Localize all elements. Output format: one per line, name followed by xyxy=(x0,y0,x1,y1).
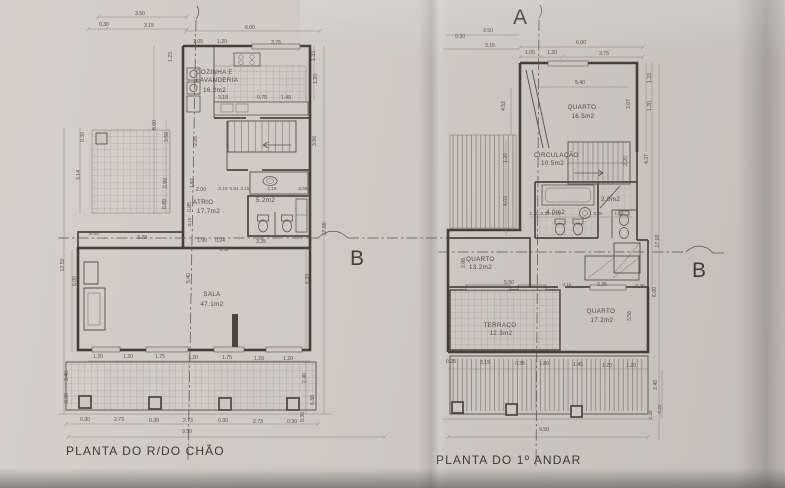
dimension-label: 1.45 xyxy=(573,362,583,368)
dimension-label: 1.20 xyxy=(313,74,319,84)
room-name-kitchen: COZINHA E xyxy=(196,69,233,76)
dimension-label: 3.50 xyxy=(483,28,493,34)
room-area-bath: 5.2m2 xyxy=(256,197,275,204)
dimension-label: 1.80 xyxy=(539,361,549,367)
dimension-label: 3.15 xyxy=(144,23,154,29)
room-area-kitchen: 16.2m2 xyxy=(203,87,226,94)
ground-patio-grid xyxy=(92,130,170,213)
dimension-label: 2.73 xyxy=(253,419,263,425)
dimension-label: 6.00 xyxy=(245,25,255,31)
dimension-label: 3.15 xyxy=(485,43,495,49)
dimension-label: 1.20 xyxy=(93,354,103,360)
dimension-label: 1.20 xyxy=(123,354,133,360)
toilet-icon xyxy=(282,215,293,232)
dimension-label: 9.50 xyxy=(539,427,549,433)
dimension-label: 17.00 xyxy=(322,222,328,235)
dimension-label: 0.30 xyxy=(80,417,90,423)
dimension-label: 1.23 xyxy=(168,52,174,62)
dimension-label: 1.20 xyxy=(647,101,653,111)
column xyxy=(79,396,91,408)
dimension-label: 3.58 xyxy=(164,132,170,142)
dimension-label: 1.20 xyxy=(626,363,636,369)
room-name-circulacao: CIRCULAÇÃO xyxy=(534,152,579,159)
room-name-quarto2: QUARTO xyxy=(466,256,495,263)
dimension-label: 2.73 xyxy=(114,417,124,423)
dimension-label: 1.20 xyxy=(254,356,264,362)
dimension-label: 0.15 xyxy=(541,211,550,216)
room-area-quarto1: 16.5m2 xyxy=(571,113,594,120)
dimension-label: 0.30 xyxy=(594,211,603,216)
dimension-label: 0.15 xyxy=(187,217,192,226)
dimension-label: 2.40 xyxy=(64,371,70,381)
dimension-label: 3.25 xyxy=(597,282,607,288)
dimension-label: 0.35 xyxy=(515,361,525,367)
dimension-label: 0.99 xyxy=(163,178,169,188)
dimension-label: 2.20 xyxy=(193,136,199,146)
dimension-label: 1.90 xyxy=(197,238,207,244)
blueprint-photo: 3.50 0.30 3.15 6.00 1.05 1.20 3.75 COZIN… xyxy=(0,0,785,488)
dimension-label: 0.15 xyxy=(563,282,572,287)
dimension-label: 6.00 xyxy=(72,276,78,286)
column xyxy=(452,402,463,413)
dimension-label: 1.20 xyxy=(547,50,557,56)
room-name-sala: SALA xyxy=(203,291,221,298)
closets xyxy=(585,243,640,280)
dimension-label: 1.75 xyxy=(222,355,232,361)
room-area-terraco: 12.3m2 xyxy=(489,330,512,337)
dimension-label: 0.30 xyxy=(89,231,99,237)
dimension-label: 1.33 xyxy=(647,73,653,83)
dimension-label: 5.50 xyxy=(504,280,514,286)
dimension-label: 0.75 xyxy=(257,95,267,101)
dimension-label: 1.05 xyxy=(193,39,203,45)
dimension-label: 3.50 xyxy=(135,11,145,17)
room-name-quarto3: QUARTO xyxy=(587,308,616,315)
dimension-label: 12.50 xyxy=(60,258,66,271)
window xyxy=(92,347,120,352)
column xyxy=(287,398,299,410)
dimension-label: 4.37 xyxy=(644,154,650,164)
dimension-label: 3.18 xyxy=(218,95,228,101)
ground-front-terrace xyxy=(58,362,332,414)
dimension-label: 1.20 xyxy=(217,39,227,45)
first-floor-plan: A 3.50 0.30 3.15 6.00 1.05 1.20 3.75 5.4… xyxy=(436,5,726,468)
fireplace xyxy=(84,262,105,330)
dimension-label: 3.75 xyxy=(271,40,281,46)
ground-floor-plan: 3.50 0.30 3.15 6.00 1.05 1.20 3.75 COZIN… xyxy=(58,6,458,462)
section-marker-b-first: B xyxy=(692,259,706,282)
dimension-label: 0.84 xyxy=(230,186,239,191)
cabinet xyxy=(187,96,200,112)
dimension-label: 9.50 xyxy=(182,429,192,435)
column xyxy=(506,404,517,415)
room-name-kitchen2: LAVANDERIA xyxy=(196,77,239,84)
room-name-atrio: ATRIO xyxy=(193,199,213,206)
plan-title-first: PLANTA DO 1º ANDAR xyxy=(436,453,581,467)
dimension-label: 6.39 xyxy=(305,274,311,284)
shower-icon xyxy=(296,199,307,232)
dimension-label: 1.57 xyxy=(190,178,196,188)
dimension-label: 0.89 xyxy=(162,199,168,209)
dimension-label: 1.20 xyxy=(503,153,509,163)
dimension-label: 1.50 xyxy=(615,211,624,216)
dimension-label: 0.30 xyxy=(287,419,297,425)
dimension-label: 1.25 xyxy=(552,211,561,216)
dimension-label: 3.07 xyxy=(626,99,632,109)
dimension-label: 0.24 xyxy=(215,238,225,244)
dimension-label: 17.00 xyxy=(655,234,661,247)
stairs xyxy=(228,121,296,152)
dimension-label: 2.00 xyxy=(196,187,206,193)
dimension-label: 6.00 xyxy=(652,287,658,297)
dimension-label: 0.15 xyxy=(241,186,250,191)
window xyxy=(548,61,588,66)
kitchen-fixtures xyxy=(187,53,308,115)
dimension-label: 0.85 xyxy=(187,202,193,212)
dimension-label: 0.30 xyxy=(636,283,645,288)
dimension-label: 2.40 xyxy=(302,373,308,383)
dimension-label: 1.20 xyxy=(530,211,539,216)
dimension-label: 0.30 xyxy=(300,412,306,422)
dimension-label: 0.30 xyxy=(648,410,653,419)
dimension-label: 3.14 xyxy=(76,170,82,180)
dimension-label: 1.20 xyxy=(602,363,612,369)
dimension-label: 6.00 xyxy=(576,40,586,46)
dimension-label: 1.33 xyxy=(311,51,317,61)
dimension-label: 0.55 xyxy=(299,186,308,191)
dimension-label: 4.52 xyxy=(501,101,507,111)
dimension-label: 1.05 xyxy=(525,50,535,56)
dimension-label: 2.73 xyxy=(183,418,193,424)
dimension-label: 1.48 xyxy=(281,95,291,101)
room-area-sala: 47.1m2 xyxy=(200,301,223,308)
dimension-label: 0.30 xyxy=(80,132,86,142)
dimension-label: 3.56 xyxy=(627,311,633,321)
room-area-circulacao: 10.5m2 xyxy=(541,160,564,167)
dimension-label: 4.03 xyxy=(503,196,509,206)
dimension-label: 0.30 xyxy=(64,393,70,403)
room-area-atrio: 17.7m2 xyxy=(197,208,220,215)
first-terraco-grid xyxy=(450,285,560,350)
window xyxy=(146,347,188,352)
room-name-terraco: TERRAÇO xyxy=(483,322,516,329)
window xyxy=(266,347,302,352)
bathtub-icon xyxy=(542,185,594,205)
dimension-label: 2.20 xyxy=(623,156,629,166)
dimension-label: 3.78 xyxy=(137,235,147,241)
plan-title-ground: PLANTA DO R/DO CHÃO xyxy=(66,444,225,458)
stove-icon xyxy=(234,53,260,66)
bidet-icon xyxy=(620,228,629,239)
column xyxy=(149,397,161,409)
dimension-label: 0.30 xyxy=(149,418,159,424)
dimension-label: 1.75 xyxy=(155,354,165,360)
dimension-label: 3.96 xyxy=(312,136,318,146)
column xyxy=(219,398,231,410)
dimension-label: 0.15 xyxy=(219,186,228,191)
dimension-label: 3.25 xyxy=(256,239,266,245)
dimension-label: 8.00 xyxy=(152,120,158,130)
toilet-icon xyxy=(258,215,269,232)
wall-stub xyxy=(232,314,238,350)
dimension-label: 3.15 xyxy=(480,360,490,366)
sink-icon xyxy=(236,104,248,112)
dimension-label: 2.40 xyxy=(653,380,659,390)
dimension-label: 6.38 xyxy=(310,395,316,405)
window xyxy=(214,347,244,352)
column xyxy=(96,133,107,144)
dimension-label: 0.30 xyxy=(455,34,465,40)
dimension-label: 5.40 xyxy=(575,80,585,86)
dimension-label: 0.20 xyxy=(657,404,662,413)
dimension-label: 1.20 xyxy=(188,355,198,361)
section-marker-b-ground: B xyxy=(350,247,364,270)
dimension-label: 1.20 xyxy=(283,356,293,362)
sink-icon xyxy=(221,104,233,112)
room-area-quarto3: 17.2m2 xyxy=(590,317,613,324)
dimension-label: 0.55 xyxy=(220,247,229,252)
room-name-quarto1: QUARTO xyxy=(568,104,597,111)
dimension-label: 5.40 xyxy=(186,273,192,283)
dimension-label: 0.25 xyxy=(446,359,456,365)
window xyxy=(590,285,626,290)
floor-plan-drawing: 3.50 0.30 3.15 6.00 1.05 1.20 3.75 COZIN… xyxy=(0,0,785,488)
dimension-label: 0.30 xyxy=(218,418,228,424)
room-area-shower: 2.0m2 xyxy=(601,196,620,203)
dimension-label: 3.75 xyxy=(599,51,609,57)
room-area-quarto2: 13.2m2 xyxy=(469,264,492,271)
dimension-label: 0.30 xyxy=(99,22,109,28)
section-marker-a: A xyxy=(513,6,527,29)
stairs xyxy=(568,142,630,184)
washbasin-icon xyxy=(263,177,277,186)
dimension-label: 2.16 xyxy=(268,186,277,191)
column xyxy=(571,406,582,417)
